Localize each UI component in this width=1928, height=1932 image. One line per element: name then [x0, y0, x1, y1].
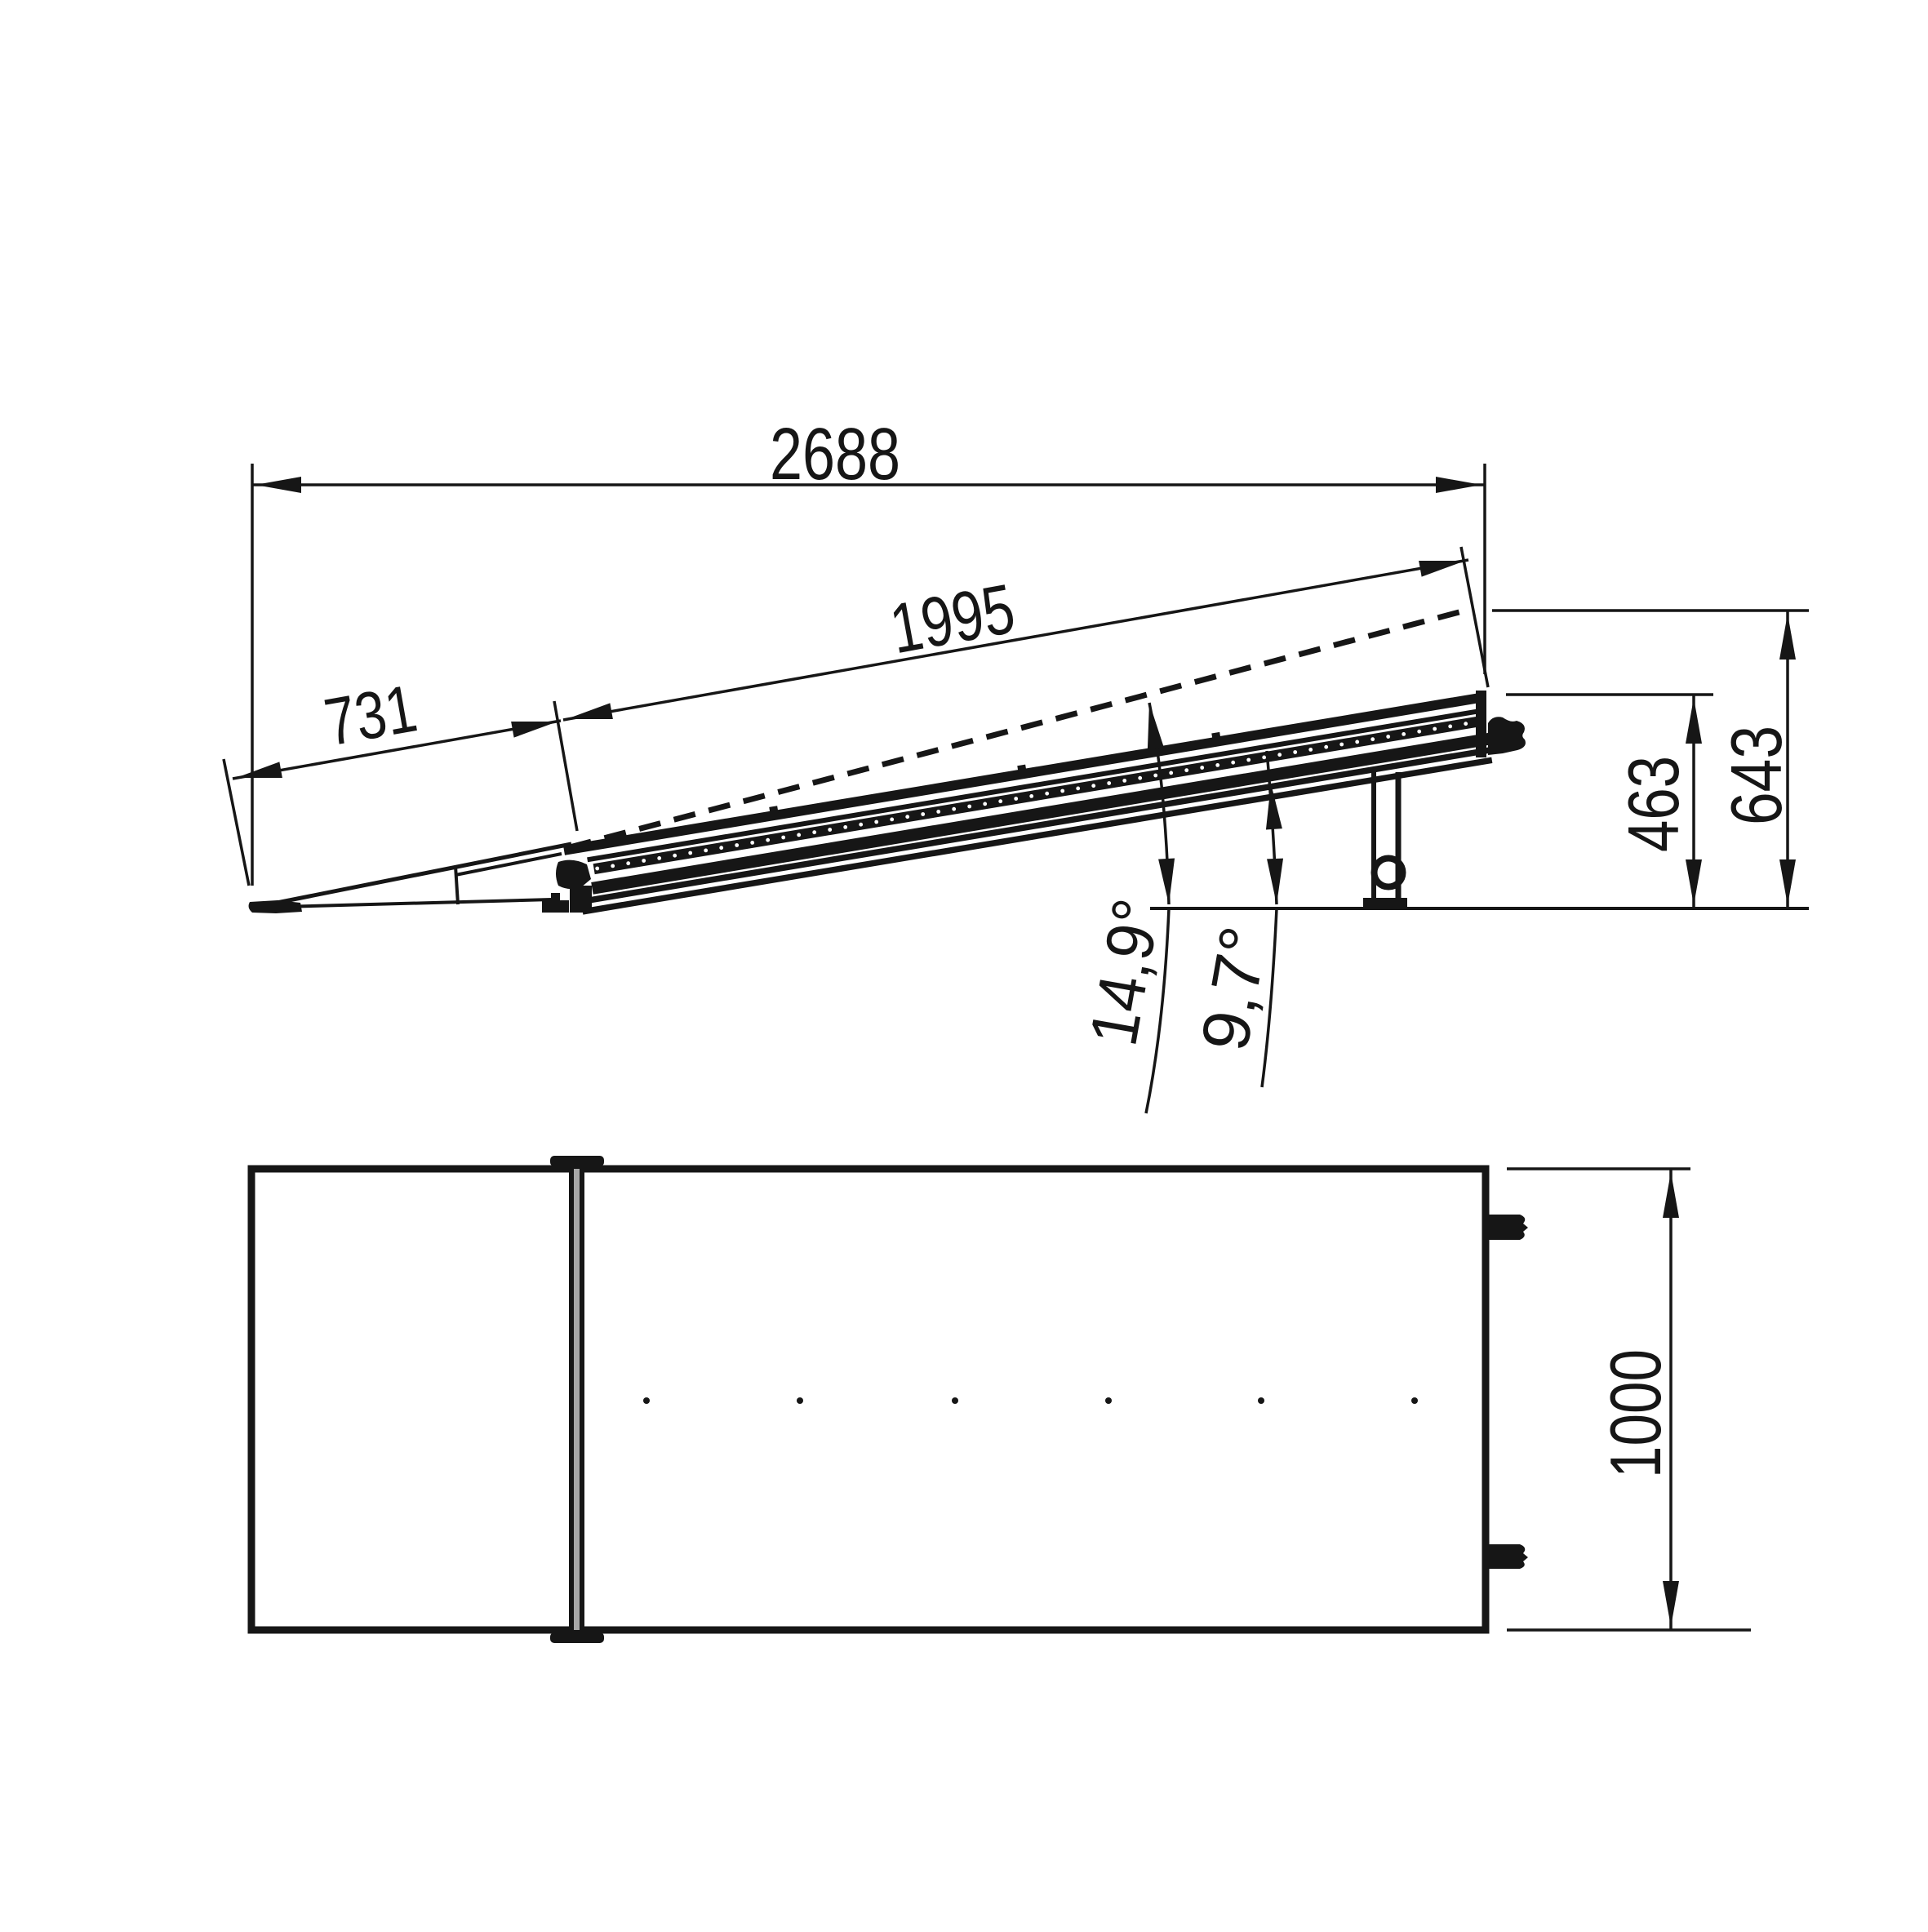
svg-text:731: 731 — [319, 671, 422, 760]
svg-text:2688: 2688 — [770, 414, 900, 495]
svg-text:1000: 1000 — [1595, 1349, 1676, 1478]
svg-text:643: 643 — [1716, 726, 1797, 825]
svg-text:463: 463 — [1613, 756, 1694, 852]
